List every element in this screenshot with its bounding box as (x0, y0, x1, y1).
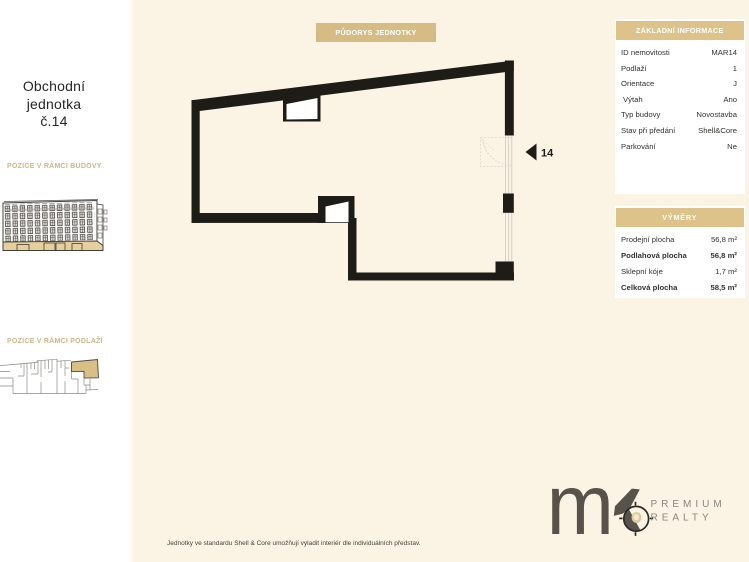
svg-text:PREMIUM: PREMIUM (651, 499, 726, 510)
svg-text:14: 14 (541, 148, 554, 160)
svg-text:m: m (547, 480, 614, 545)
svg-text:REALTY: REALTY (651, 513, 713, 524)
